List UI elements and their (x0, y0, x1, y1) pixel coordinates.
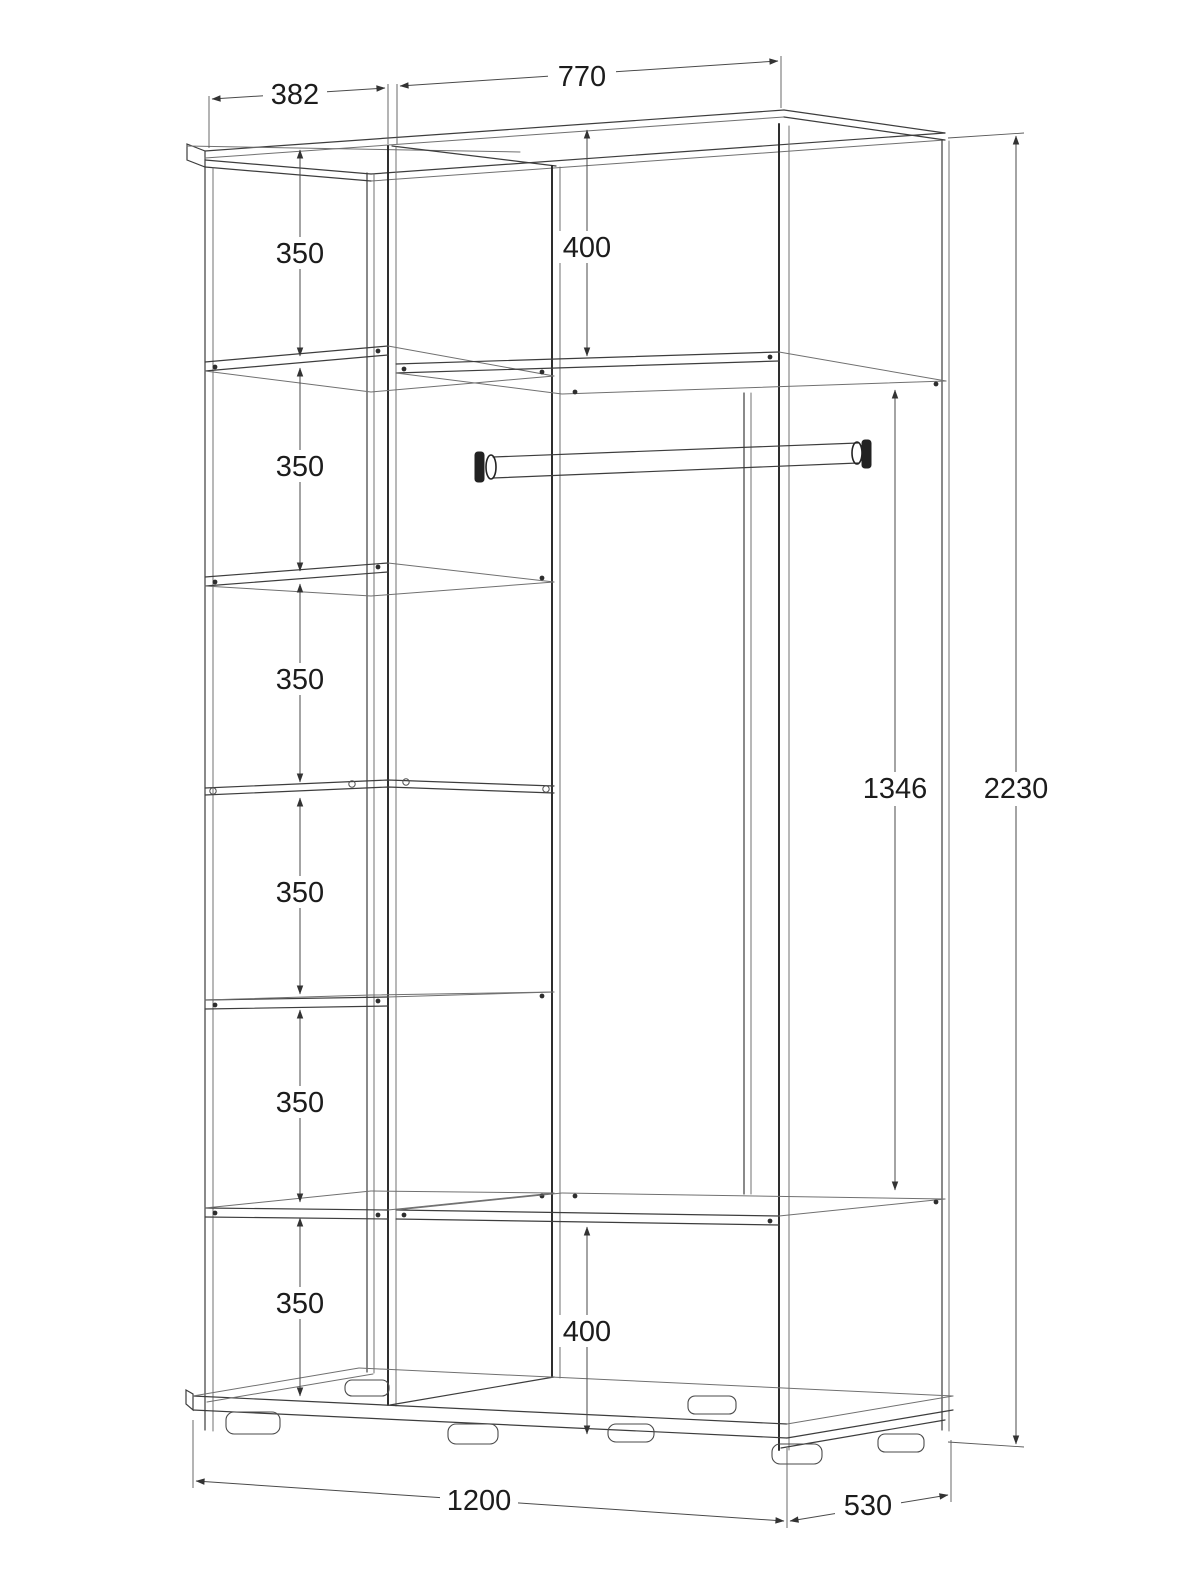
base-panel (186, 1368, 953, 1438)
dim-right-section-width-label: 770 (558, 61, 606, 93)
foot-right-side (878, 1434, 924, 1452)
wardrobe-drawing-page: 382 770 350 350 350 350 350 350 (0, 0, 1200, 1587)
foot-back-center (688, 1396, 736, 1414)
left-side-panel (205, 166, 374, 1431)
dim-shelf-spacing-2-label: 350 (276, 451, 324, 483)
dim-overall-height: 2230 (948, 133, 1058, 1447)
base-left-cap (186, 1390, 193, 1410)
dim-shelf-spacing-1-label: 350 (276, 238, 324, 270)
foot-front-left (226, 1412, 280, 1434)
dim-shelf-spacing-1: 350 (270, 150, 330, 356)
shelf-5 (205, 1191, 554, 1219)
right-top-shelf (396, 352, 946, 394)
shelf-2 (205, 563, 554, 596)
dim-overall-height-label: 2230 (984, 773, 1049, 805)
dim-rod-section-height: 1346 (855, 390, 935, 1190)
right-bottom-shelf (396, 1193, 945, 1225)
dim-shelf-spacing-3: 350 (270, 584, 330, 782)
top-panel (187, 110, 945, 181)
dim-shelf-spacing-4-label: 350 (276, 877, 324, 909)
top-panel-left-cap (187, 144, 205, 167)
dim-overall-depth: 530 (790, 1440, 951, 1522)
wardrobe-technical-drawing: 382 770 350 350 350 350 350 350 (0, 0, 1200, 1587)
dim-bottom-shelf-offset-label: 400 (563, 1316, 611, 1348)
dim-shelf-spacing-6-label: 350 (276, 1288, 324, 1320)
dim-shelf-spacing-6: 350 (270, 1218, 330, 1396)
shelf-4 (205, 992, 554, 1009)
shelf-3-mid-rail (205, 779, 554, 795)
dim-shelf-spacing-5-label: 350 (276, 1087, 324, 1119)
feet (226, 1380, 924, 1464)
rod-right-bracket (862, 440, 871, 468)
center-partition (388, 146, 560, 1406)
dim-bottom-shelf-offset: 400 (557, 1227, 617, 1434)
dim-left-section-width-label: 382 (271, 79, 319, 111)
back-panel-joint (744, 393, 751, 1194)
shelf-1 (205, 346, 554, 392)
dim-top-shelf-offset-label: 400 (563, 232, 611, 264)
dim-rod-section-height-label: 1346 (863, 773, 928, 805)
dim-shelf-spacing-3-label: 350 (276, 664, 324, 696)
dim-overall-width: 1200 (193, 1420, 787, 1528)
hanging-rod (475, 440, 871, 482)
dim-overall-depth-label: 530 (844, 1490, 892, 1522)
dim-shelf-spacing-4: 350 (270, 798, 330, 994)
dim-shelf-spacing-5: 350 (270, 1010, 330, 1202)
foot-front-mid-right (608, 1424, 654, 1442)
dim-overall-width-label: 1200 (447, 1485, 512, 1517)
dim-shelf-spacing-2: 350 (270, 368, 330, 571)
rod-left-bracket (475, 452, 484, 482)
dim-left-section-width: 382 (209, 78, 388, 148)
foot-back-left (345, 1380, 389, 1396)
foot-front-center (448, 1424, 498, 1444)
